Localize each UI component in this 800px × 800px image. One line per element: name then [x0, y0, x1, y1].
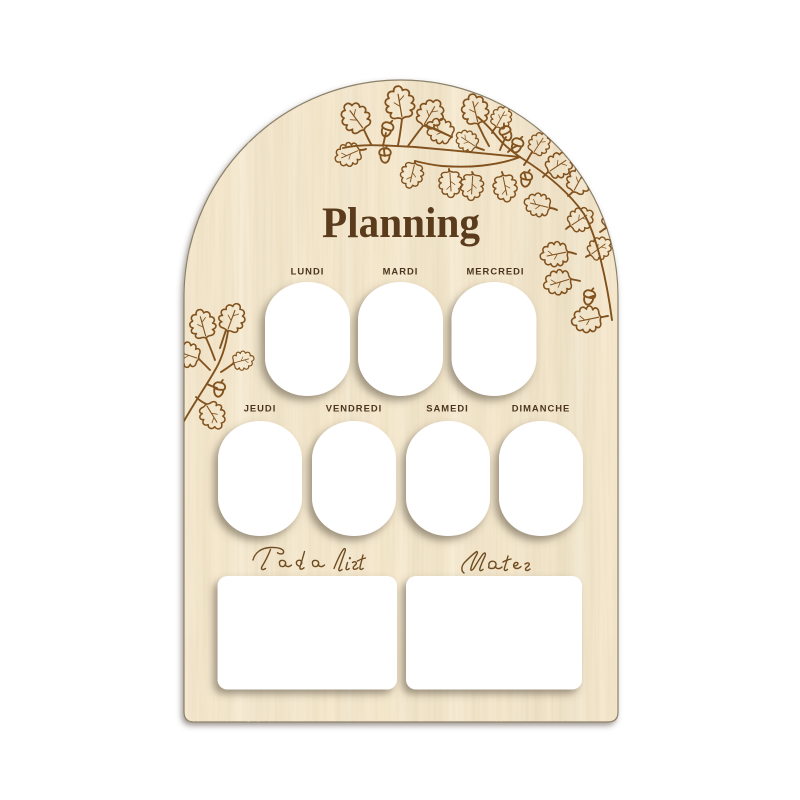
svg-text:MERCREDI: MERCREDI [466, 266, 524, 277]
svg-text:JEUDI: JEUDI [244, 403, 277, 414]
svg-text:LUNDI: LUNDI [291, 266, 325, 277]
svg-text:DIMANCHE: DIMANCHE [512, 403, 571, 414]
svg-text:VENDREDI: VENDREDI [326, 403, 382, 414]
svg-text:MARDI: MARDI [383, 266, 419, 277]
svg-text:Planning: Planning [322, 200, 480, 247]
svg-text:SAMEDI: SAMEDI [426, 403, 468, 414]
